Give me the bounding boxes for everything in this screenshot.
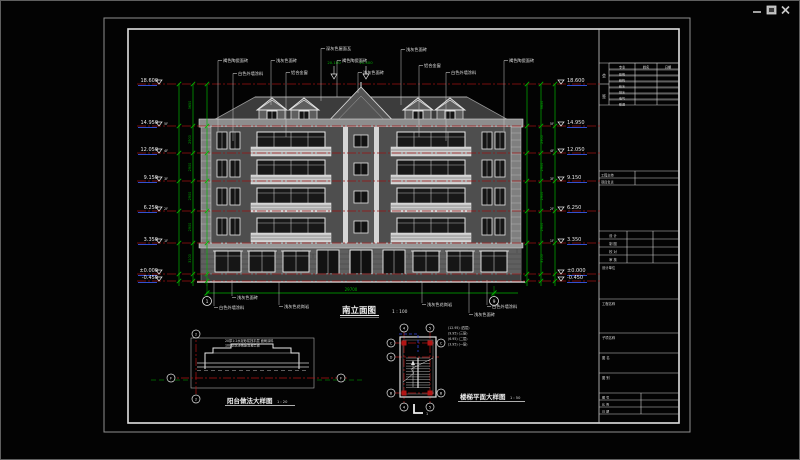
balcony-railing: [251, 147, 331, 156]
level-symbol-right: [558, 149, 564, 153]
sign-header: 专业: [619, 65, 625, 70]
elevation-title: 南立面图: [342, 305, 376, 316]
level-value-left: 9.150: [144, 175, 158, 181]
approval-row-label: 设 计: [609, 233, 617, 238]
material-callout: 浅灰色面砖: [276, 57, 297, 64]
small-row-label: 日 期: [602, 408, 609, 413]
axis-bubble-label: 2: [195, 398, 197, 402]
story-dim-left: 3100: [188, 254, 192, 263]
balcony-railing: [251, 175, 331, 184]
sign-col-label: 会: [602, 72, 606, 78]
stair-detail-scale: 1 : 50: [510, 396, 521, 400]
level-value-right: 6.250: [567, 205, 581, 211]
level-symbol-right: [558, 177, 564, 181]
material-callout: 浅灰色面砖: [363, 69, 384, 76]
level-tag-right: 4F: [550, 149, 554, 153]
story-dim-right: 3650: [540, 101, 544, 110]
material-callout: 白色外墙涂料: [219, 304, 245, 311]
material-callout: 白色外墙涂料: [238, 70, 264, 77]
title-block: 会签专业姓名日期建筑结构给水排水电气暖通工程主持项目负责设 计制 图校 对审 核…: [599, 29, 679, 423]
level-tag-left: 3F: [164, 177, 168, 181]
axis-bubble-label: F: [170, 377, 172, 381]
level-symbol-right: [558, 239, 564, 243]
sign-header: 日期: [665, 65, 671, 70]
story-dim-right: 2900: [540, 163, 544, 172]
story-dim-right: 2900: [540, 223, 544, 232]
axis-bubble-label: 5: [429, 327, 431, 331]
box-label: 图 别: [602, 375, 610, 380]
level-tag-right: 5F: [550, 122, 554, 126]
material-callout: 铝合金窗: [291, 69, 308, 76]
ground-band: [199, 243, 523, 248]
window-controls: [753, 6, 789, 14]
story-dim-left: 2900: [188, 135, 192, 144]
story-dim-left: 2900: [188, 192, 192, 201]
box-label: 工程名称: [602, 301, 616, 306]
mid-row-label: 项目负责: [601, 180, 614, 185]
balcony-railing: [391, 147, 471, 156]
story-dim-left: 2900: [188, 163, 192, 172]
level-value-left: 12.050: [141, 147, 159, 153]
building-elevation: [197, 82, 525, 282]
level-value-left: ±0.000: [139, 268, 158, 274]
axis-bubble-label: D: [390, 356, 393, 360]
balcony-detail-scale: 1 : 20: [277, 400, 288, 404]
level-value-left: 3.350: [144, 237, 158, 243]
level-tag-left: 1F: [164, 239, 168, 243]
sign-header: 姓名: [643, 65, 649, 70]
ridge-marker-flag: [331, 74, 337, 79]
material-callout: 褐色陶瓷面砖: [342, 57, 367, 64]
stair-legend-row: (12.95) (四层): [448, 325, 470, 330]
axis-bubble-label: 2: [195, 333, 197, 337]
column: [402, 341, 407, 346]
level-value-right: 3.350: [567, 237, 581, 243]
level-tag-right: 1F: [550, 239, 554, 243]
level-value-right: 9.150: [567, 175, 581, 181]
level-symbol-right: [558, 207, 564, 211]
level-symbol-right: [558, 122, 564, 126]
level-value-right: 18.600: [567, 78, 585, 84]
level-value-left: 6.250: [144, 205, 158, 211]
material-callout: 白色外墙涂料: [451, 69, 477, 76]
stair-legend-row: (6.95) (二层): [448, 336, 467, 341]
story-dim-right: 2900: [540, 135, 544, 144]
story-dim-left: 2900: [188, 223, 192, 232]
drawing-canvas[interactable]: 会签专业姓名日期建筑结构给水排水电气暖通工程主持项目负责设 计制 图校 对审 核…: [1, 1, 800, 460]
box-label: 图 名: [602, 355, 610, 360]
material-callout: 铝合金窗: [424, 62, 441, 69]
cad-app-window: 会签专业姓名日期建筑结构给水排水电气暖通工程主持项目负责设 计制 图校 对审 核…: [0, 0, 800, 460]
material-callout: 浅灰色花岗岩: [427, 301, 452, 308]
approval-row-label: 制 图: [609, 241, 617, 246]
level-value-right: ±0.000: [567, 268, 586, 274]
stair-plan-detail: 4545CDBCB(12.95) (四层)(9.95) (三层)(6.95) (…: [387, 324, 470, 416]
material-callout: 褐色陶瓷面砖: [223, 57, 248, 64]
approval-row-label: 校 对: [609, 249, 617, 254]
mid-row-label: 工程主持: [601, 173, 615, 178]
small-row-label: 比 例: [602, 401, 609, 406]
level-tag-right: 2F: [550, 207, 554, 211]
balcony-railing: [391, 233, 471, 242]
sign-row-label: 建筑: [619, 72, 625, 77]
balcony-section-profile: [205, 344, 299, 369]
level-value-right: 14.950: [567, 120, 585, 126]
stair-legend-row: (3.95) (一层): [448, 342, 467, 347]
balcony-railing: [391, 175, 471, 184]
material-callout: 白色外墙涂料: [492, 303, 518, 310]
material-callout: 浅灰色面砖: [237, 294, 258, 301]
stair-legend-row: (9.95) (三层): [448, 331, 467, 336]
level-tag-left: 5F: [164, 122, 168, 126]
level-symbol-right: [558, 277, 564, 281]
close-icon[interactable]: [782, 7, 789, 14]
overall-dim-value: 29700: [345, 287, 358, 292]
sign-row-label: 给水: [619, 84, 626, 89]
level-symbol-right: [558, 80, 564, 84]
box-label: 设计单位: [602, 265, 616, 270]
level-value-right: -0.450: [567, 275, 583, 281]
story-dim-right: 2900: [540, 192, 544, 201]
column: [428, 341, 433, 346]
material-callout: 深灰色屋面瓦: [326, 45, 351, 52]
story-dim-left: 3650: [188, 101, 192, 110]
story-dim-right: 3100: [540, 254, 544, 263]
approval-row-label: 审 核: [609, 257, 617, 262]
section-mark-label: 1: [426, 412, 428, 416]
axis-bubble-label: F: [340, 377, 342, 381]
restore-icon[interactable]: [767, 6, 776, 14]
sign-row-label: 电气: [619, 96, 625, 101]
detail-note: 20厚1:2水泥砂浆找平层 面刷涂料: [225, 338, 274, 343]
axis-bubble-label: 5: [429, 406, 431, 410]
material-callout: 褐色陶瓷面砖: [509, 57, 534, 64]
sign-row-label: 暖通: [619, 102, 625, 107]
level-tag-right: 3F: [550, 177, 554, 181]
material-callout: 浅灰色面砖: [406, 46, 427, 53]
section-mark: [414, 404, 423, 413]
material-callout: 浅灰色花岗岩: [284, 303, 309, 310]
level-symbol-right: [558, 270, 564, 274]
level-value-left: 14.950: [141, 120, 159, 126]
level-value-left: 18.600: [141, 78, 159, 84]
column: [428, 391, 433, 396]
balcony-railing: [251, 233, 331, 242]
level-value-right: 12.050: [567, 147, 585, 153]
balcony-detail-drawing: 20厚1:2水泥砂浆找平层 面刷涂料100厚现浇钢筋混凝土板22FF: [151, 330, 363, 403]
sign-row-label: 排水: [619, 90, 626, 95]
sign-row-label: 结构: [619, 78, 625, 83]
level-value-left: -0.450: [142, 275, 158, 281]
detail-note: 100厚现浇钢筋混凝土板: [225, 343, 261, 348]
elevation-scale: 1 : 100: [392, 309, 408, 315]
axis-bubble-label: 1: [206, 299, 209, 305]
level-tag-left: 4F: [164, 149, 168, 153]
column: [402, 391, 407, 396]
small-row-label: 图 号: [602, 394, 609, 399]
level-tag-left: 2F: [164, 207, 168, 211]
sign-col-label: 签: [602, 93, 606, 99]
box-label: 子项名称: [602, 335, 616, 340]
balcony-detail-title: 阳台做法大样图: [227, 396, 273, 405]
material-callout: 浅灰色面砖: [474, 311, 495, 318]
stair-detail-title: 楼梯平面大样图: [460, 392, 506, 401]
